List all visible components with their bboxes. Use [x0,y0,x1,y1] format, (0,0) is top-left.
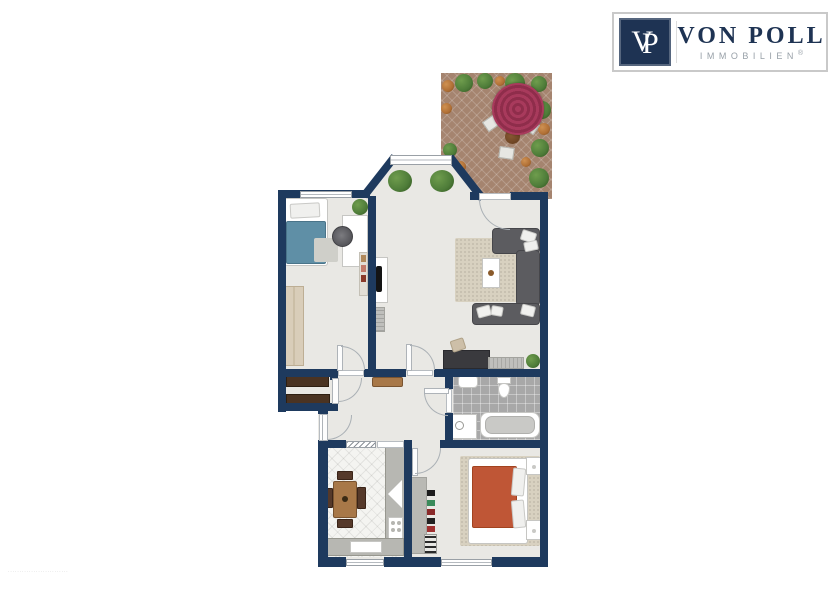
pillow [290,202,321,219]
plant-icon [442,80,454,92]
wall [318,403,328,414]
sofa-icon [516,250,540,306]
plant-icon [526,354,540,368]
shelf-item [427,526,435,532]
plant-icon [430,170,454,192]
exterior-patch [276,411,318,447]
vp-monogram-icon: V P [619,18,671,66]
wall-shelf-items [359,252,368,296]
plant-icon [531,139,549,157]
window-icon [441,559,492,566]
bathtub-basin [485,416,535,434]
monogram-p: P [642,27,659,61]
plant-icon [352,199,368,215]
terrace-chair [498,146,515,160]
shelf-item [427,509,435,515]
wall [318,441,328,567]
wall [278,403,338,411]
brand-subtitle: IMMOBILIEN® [677,50,826,61]
vonpoll-logo: V P VON POLL IMMOBILIEN® [612,12,828,72]
pillow [511,499,526,528]
wall [404,440,412,567]
window-icon [390,155,452,165]
window-icon [300,191,352,198]
logo-text: VON POLL IMMOBILIEN® [676,21,826,63]
plant-icon [529,168,549,188]
pass-through-window [346,441,376,448]
watermark-text: ·························· [8,570,68,574]
plant-icon [455,74,473,92]
brand-name: VON POLL [677,23,826,49]
chair [337,519,353,528]
shelf-ladder [424,534,437,554]
plant-icon [388,170,412,192]
parasol-icon [492,83,544,135]
lowboard-light [488,357,524,369]
wall [364,369,406,377]
bed-blanket-orange [472,466,517,528]
shelf-item [427,518,435,524]
door-threshold [377,441,404,448]
wall [318,440,346,448]
washing-machine-door [455,421,464,430]
wall [368,196,376,377]
wall [434,369,540,377]
wall [540,192,548,567]
plant-icon [441,103,452,114]
pillow [511,467,526,496]
wall [278,190,286,412]
tv-icon [376,266,382,292]
nightstand [526,520,541,540]
office-chair-icon [332,226,353,247]
sofa-pillow [490,305,504,317]
plant-icon [521,157,531,167]
shelf-item [427,500,435,506]
nightstand [526,457,541,475]
wall [318,557,346,567]
wall [440,440,548,448]
hall-sideboard [372,377,403,387]
wardrobe [284,286,304,366]
shelf-item [427,490,435,496]
wall [492,557,548,567]
chair [337,471,353,480]
plant-icon [495,76,505,86]
lowboard-dark [443,350,490,369]
table-decor [342,496,348,502]
table-decor [488,270,494,276]
brand-subtitle-text: IMMOBILIEN [700,51,798,61]
registered-mark: ® [798,50,803,57]
wall [278,369,338,377]
chair [357,487,366,509]
kitchen-sink [350,541,382,553]
plant-icon [477,73,493,89]
floorplan-page: V P VON POLL IMMOBILIEN® [0,0,834,589]
window-icon [346,559,384,566]
wall [384,557,441,567]
